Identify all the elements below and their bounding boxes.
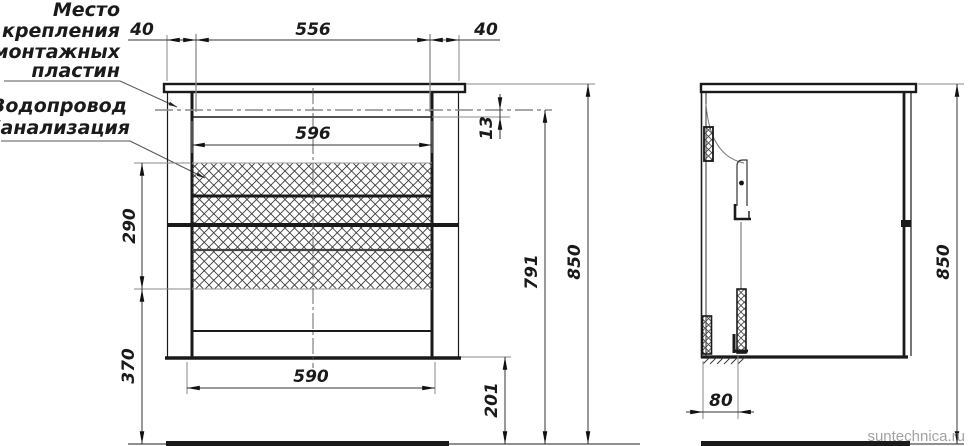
dim-value: 40	[473, 20, 498, 40]
dim-plate-drop: 13	[477, 94, 500, 140]
dim-value: 850	[565, 244, 585, 280]
side-view	[701, 84, 916, 364]
mounting-plate-lower-back	[703, 316, 712, 354]
dim-bottom-width: 590	[187, 362, 435, 394]
countertop-side	[701, 84, 916, 92]
dim-value: 40	[129, 20, 154, 40]
note-line: пластин	[31, 60, 120, 82]
note-line: крепления	[2, 20, 120, 42]
dim-side-total-height: 850	[918, 84, 964, 444]
note-line: Место	[53, 0, 120, 21]
floor-line	[128, 444, 964, 445]
dim-value: 370	[119, 348, 139, 384]
dim-value: 201	[482, 382, 502, 418]
dim-value: 596	[295, 124, 331, 144]
mounting-plate-lower	[737, 289, 746, 353]
dim-top-chain: 40 556 40	[128, 20, 500, 112]
plumbing-note: Водопровод Канализация	[0, 95, 205, 178]
dim-plate-depth: 80	[686, 356, 754, 419]
note-line: Канализация	[0, 117, 130, 139]
mounting-plates-note: Место крепления монтажных пластин	[0, 0, 177, 107]
front-panel-joint	[901, 220, 911, 227]
dim-floor-to-plate: 791	[522, 110, 545, 444]
dim-value: 791	[522, 254, 542, 290]
dim-value: 850	[934, 244, 954, 280]
watermark: suntechnica.ru	[867, 428, 965, 445]
technical-drawing-page: Место крепления монтажных пластин Водопр…	[0, 0, 970, 446]
dim-value: 590	[293, 367, 329, 387]
dim-value: 290	[120, 208, 140, 244]
dim-value: 80	[709, 391, 733, 411]
mounting-plate-upper	[704, 127, 713, 161]
dim-floor-to-bottom: 201	[461, 357, 511, 444]
dim-zone-to-floor: 370	[119, 289, 142, 444]
bracket-pin	[739, 181, 744, 186]
dim-value: 13	[477, 116, 497, 140]
side-dimensions: 80 850	[686, 84, 964, 444]
dim-value: 556	[295, 20, 331, 40]
note-line: Водопровод	[0, 95, 127, 117]
dim-inner-width: 596	[192, 121, 432, 153]
countertop-front	[164, 84, 465, 92]
vanity-cabinet-drawing: Место крепления монтажных пластин Водопр…	[0, 0, 970, 446]
